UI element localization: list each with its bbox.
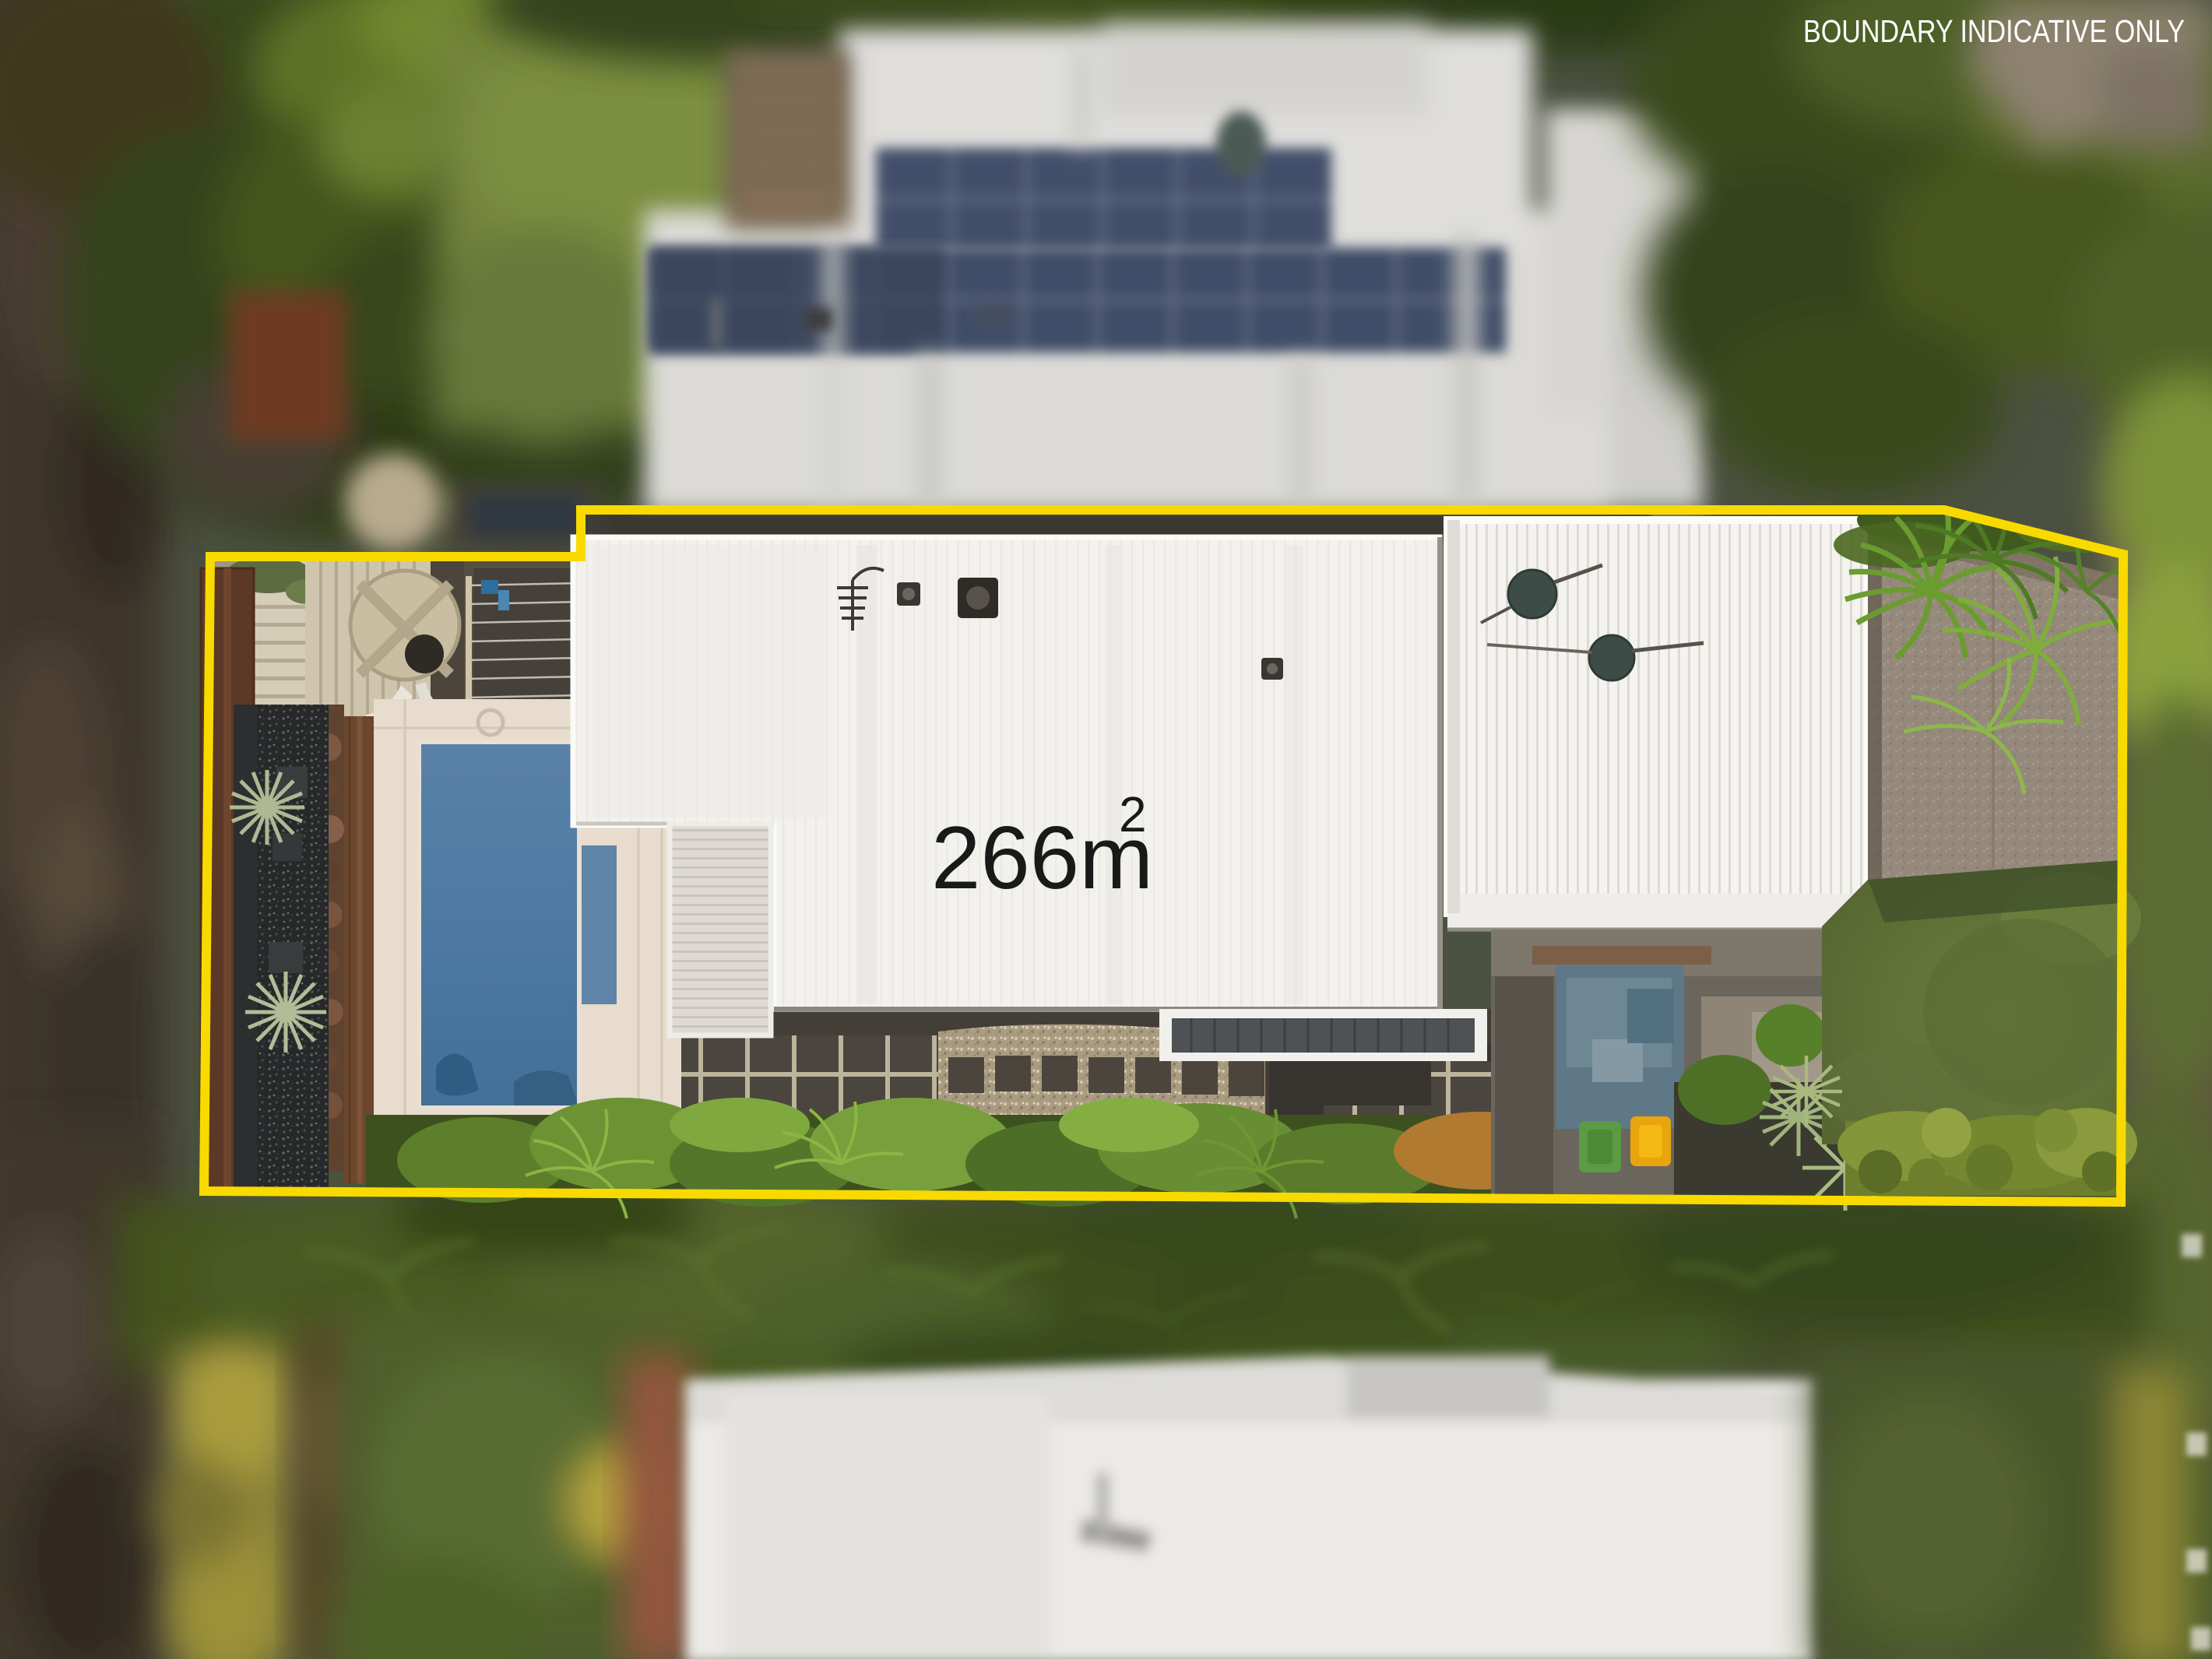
svg-text:BOUNDARY INDICATIVE ONLY: BOUNDARY INDICATIVE ONLY — [1803, 13, 2185, 49]
svg-text:2: 2 — [1119, 786, 1147, 842]
